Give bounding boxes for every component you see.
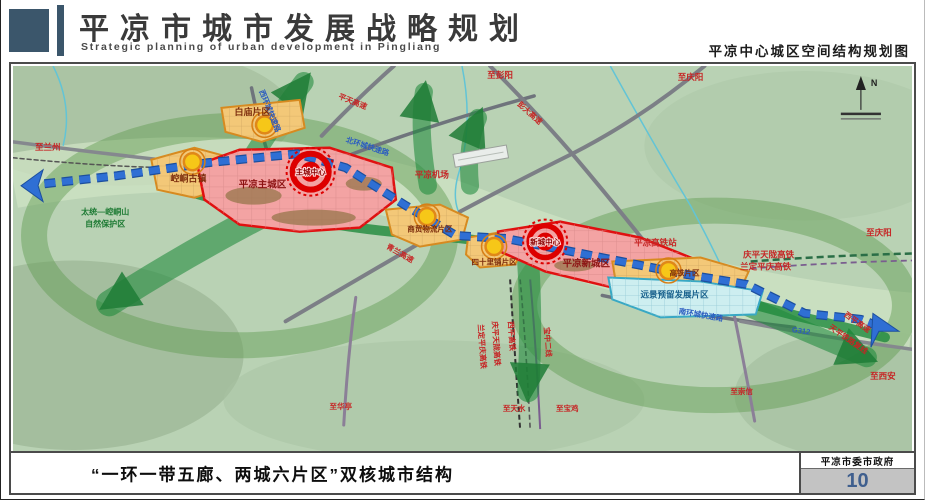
planning-slide: 平凉市城市发展战略规划 Strategic planning of urban … (0, 0, 925, 500)
node-sishilipu (482, 234, 507, 259)
map-panel: 至兰州 至彭阳 至庆阳 至庆阳 至西安 至崇信 至华亭 至天水 至宝鸡 平天高速… (13, 66, 912, 451)
node-kongtong (180, 149, 205, 174)
label-to-lanzhou: 至兰州 (35, 142, 61, 152)
label-zone-sishilipu: 四十里铺片区 (472, 257, 518, 267)
organization-label: 平凉市委市政府 (801, 453, 914, 469)
corridor-arrow-south (528, 261, 530, 391)
logo-block (9, 9, 49, 52)
label-hsr-station: 平凉高铁站 (634, 238, 677, 248)
label-baozhong-second-line: 宝中二线 (542, 327, 554, 358)
label-to-chongxin: 至崇信 (730, 386, 753, 396)
label-to-qingyang-top: 至庆阳 (678, 72, 704, 82)
label-zone-baimiao: 白庙片区 (235, 106, 271, 117)
map-sheet-title: 平凉中心城区空间结构规划图 (709, 40, 911, 60)
label-zone-reserved: 远景预留发展片区 (640, 289, 709, 299)
label-zone-main-city: 平凉主城区 (239, 179, 287, 191)
label-zone-hsr: 高铁片区 (669, 267, 700, 277)
compass-n-label: N (871, 78, 878, 88)
page-subtitle: Strategic planning of urban development … (81, 41, 441, 53)
label-core-new: 新城中心 (530, 237, 561, 247)
label-zone-trade-logistics: 商贸物流片区 (407, 224, 453, 234)
label-nature-reserve-1: 太统—崆峒山 (80, 207, 129, 217)
footer: “一环一带五廊、两城六片区”双核城市结构 平凉市委市政府 10 (11, 451, 914, 493)
label-nature-reserve-2: 自然保护区 (85, 219, 125, 229)
content-frame: 至兰州 至彭阳 至庆阳 至庆阳 至西安 至崇信 至华亭 至天水 至宝鸡 平天高速… (9, 62, 916, 495)
label-qingping-tianlong-hsr: 庆平天陇高铁 (742, 250, 795, 260)
label-to-huating: 至华亭 (329, 401, 352, 411)
label-to-baoji: 至宝鸡 (556, 403, 579, 413)
label-to-qingyang-right: 至庆阳 (866, 228, 892, 238)
header: 平凉市城市发展战略规划 Strategic planning of urban … (1, 0, 924, 60)
label-zone-new-city: 平凉新城区 (563, 258, 611, 270)
logo-accent-bar (57, 5, 64, 56)
label-landing-pingqing-hsr: 兰定平庆高铁 (740, 261, 792, 271)
page-number: 10 (801, 469, 914, 493)
structure-caption: “一环一带五廊、两城六片区”双核城市结构 (91, 461, 454, 486)
label-xiping-hsr-v: 西平高铁 (506, 321, 518, 352)
label-to-pengyang: 至彭阳 (487, 70, 513, 80)
label-to-xian: 至西安 (870, 371, 896, 381)
label-zone-kongtong: 崆峒古镇 (170, 173, 206, 184)
planning-map: 至兰州 至彭阳 至庆阳 至庆阳 至西安 至崇信 至华亭 至天水 至宝鸡 平天高速… (13, 66, 912, 451)
label-airport: 平凉机场 (415, 170, 450, 180)
label-to-tianshui: 至天水 (503, 403, 526, 413)
label-core-main: 主城中心 (296, 167, 327, 177)
page-number-box: 平凉市委市政府 10 (799, 453, 914, 493)
